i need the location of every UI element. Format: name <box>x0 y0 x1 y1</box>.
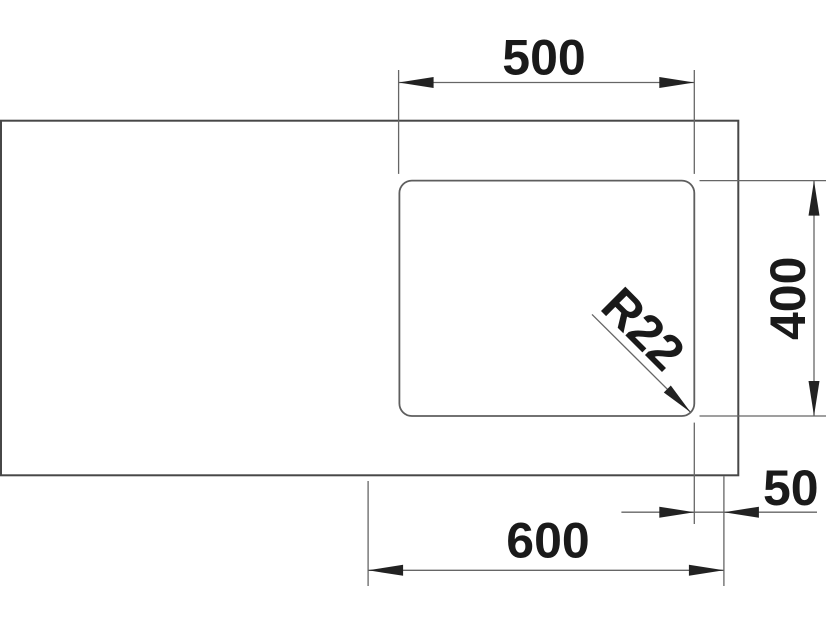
svg-text:50: 50 <box>763 460 819 516</box>
svg-text:R22: R22 <box>591 277 695 381</box>
svg-text:600: 600 <box>506 513 589 569</box>
svg-text:500: 500 <box>502 30 585 86</box>
svg-text:400: 400 <box>760 257 816 340</box>
